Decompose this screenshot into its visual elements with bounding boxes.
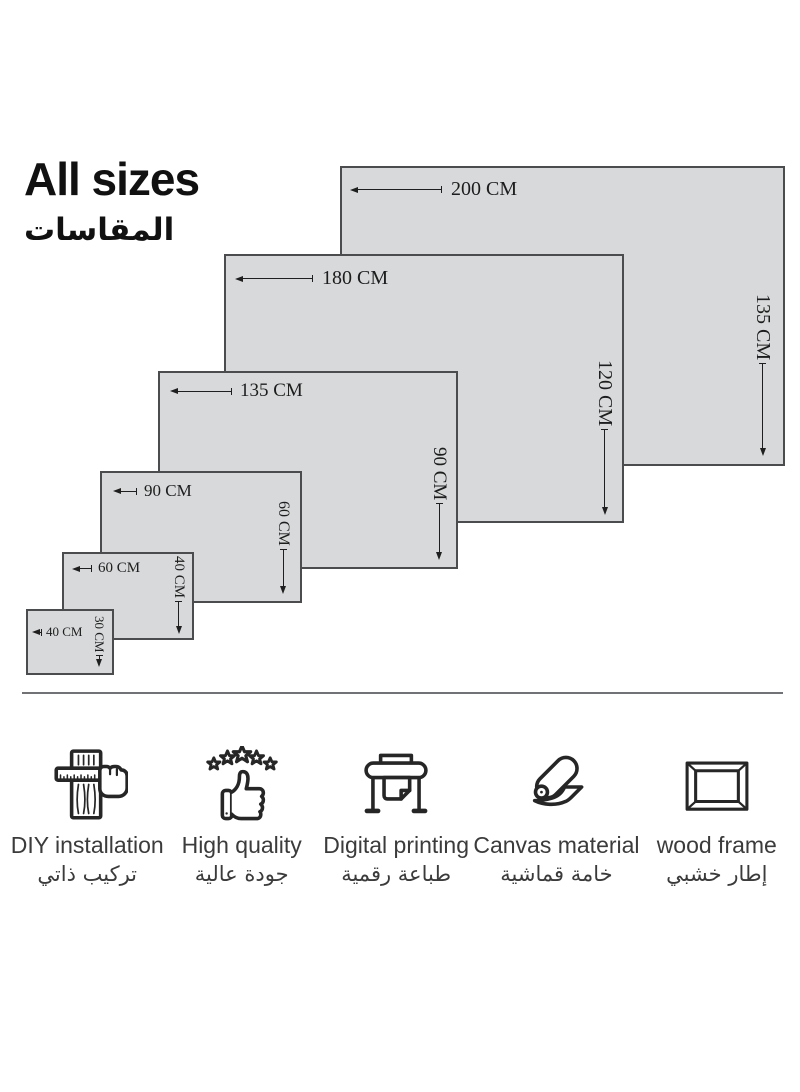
height-label: 120 CM [593, 360, 616, 426]
size-guide-infographic: All sizes المقاسات 200 CM 135 CM 180 CM … [0, 0, 800, 1092]
feature-label-arabic: جودة عالية [195, 862, 289, 886]
down-arrow-icon [96, 655, 103, 667]
feature-label-arabic: خامة قماشية [500, 862, 612, 886]
feature-label: wood frame [657, 832, 777, 859]
down-arrow-icon [280, 549, 287, 594]
page-title: All sizes [24, 156, 199, 202]
feature-label-arabic: إطار خشبي [666, 862, 767, 886]
width-label: 60 CM [98, 560, 140, 577]
width-label: 180 CM [322, 267, 388, 290]
height-label: 60 CM [274, 501, 292, 546]
feature-label: Digital printing [323, 832, 469, 859]
height-label: 40 CM [170, 556, 187, 598]
down-arrow-icon [175, 601, 182, 634]
features-row: DIY installation تركيب ذاتي High quality… [10, 746, 794, 886]
height-dimension: 60 CM [274, 501, 292, 594]
down-arrow-icon [759, 363, 766, 456]
feature-digital-printing: Digital printing طباعة رقمية [319, 746, 473, 886]
width-label: 90 CM [144, 481, 192, 501]
width-dimension: 135 CM [160, 373, 456, 402]
height-dimension: 90 CM [428, 447, 450, 560]
canvas-material-icon [515, 746, 597, 828]
height-label: 90 CM [428, 447, 450, 500]
feature-label-arabic: طباعة رقمية [341, 862, 451, 886]
width-dimension: 180 CM [226, 256, 622, 290]
feature-label: High quality [182, 832, 302, 859]
left-arrow-icon [113, 488, 137, 495]
left-arrow-icon [72, 565, 92, 572]
left-arrow-icon [32, 629, 42, 636]
height-dimension: 135 CM [751, 294, 774, 456]
height-dimension: 40 CM [170, 556, 187, 634]
height-dimension: 30 CM [91, 616, 107, 667]
down-arrow-icon [436, 503, 443, 560]
width-dimension: 90 CM [102, 473, 300, 501]
page-title-arabic: المقاسات [24, 212, 174, 249]
feature-canvas-material: Canvas material خامة قماشية [473, 746, 639, 886]
high-quality-icon [201, 746, 283, 828]
feature-wood-frame: wood frame إطار خشبي [640, 746, 794, 886]
down-arrow-icon [601, 429, 608, 515]
height-label: 30 CM [91, 616, 107, 652]
wood-frame-icon [676, 746, 758, 828]
feature-diy-installation: DIY installation تركيب ذاتي [10, 746, 164, 886]
feature-label-arabic: تركيب ذاتي [37, 862, 137, 886]
digital-printing-icon [355, 746, 437, 828]
feature-label: Canvas material [473, 832, 639, 859]
feature-label: DIY installation [11, 832, 164, 859]
left-arrow-icon [350, 186, 442, 193]
width-label: 40 CM [46, 624, 82, 640]
height-label: 135 CM [751, 294, 774, 360]
feature-high-quality: High quality جودة عالية [164, 746, 318, 886]
left-arrow-icon [170, 388, 232, 395]
diy-installation-icon [46, 746, 128, 828]
width-label: 135 CM [240, 380, 303, 402]
left-arrow-icon [235, 275, 313, 282]
height-dimension: 120 CM [593, 360, 616, 515]
width-dimension: 200 CM [342, 168, 783, 201]
width-label: 200 CM [451, 178, 517, 201]
size-rect-40x30: 40 CM 30 CM [26, 609, 114, 675]
section-divider [22, 692, 783, 694]
